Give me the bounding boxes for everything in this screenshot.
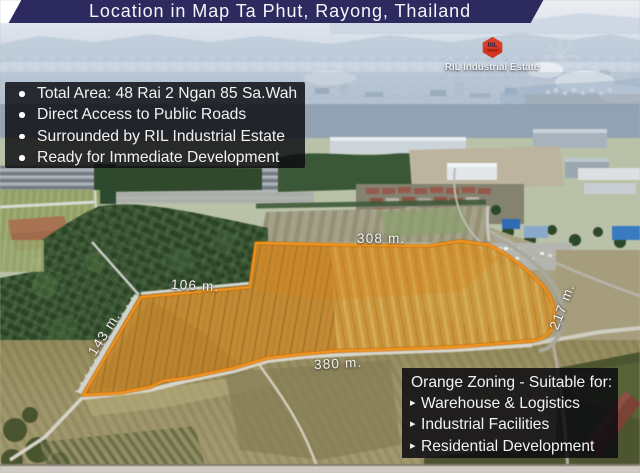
svg-text:RIL: RIL (488, 42, 498, 49)
